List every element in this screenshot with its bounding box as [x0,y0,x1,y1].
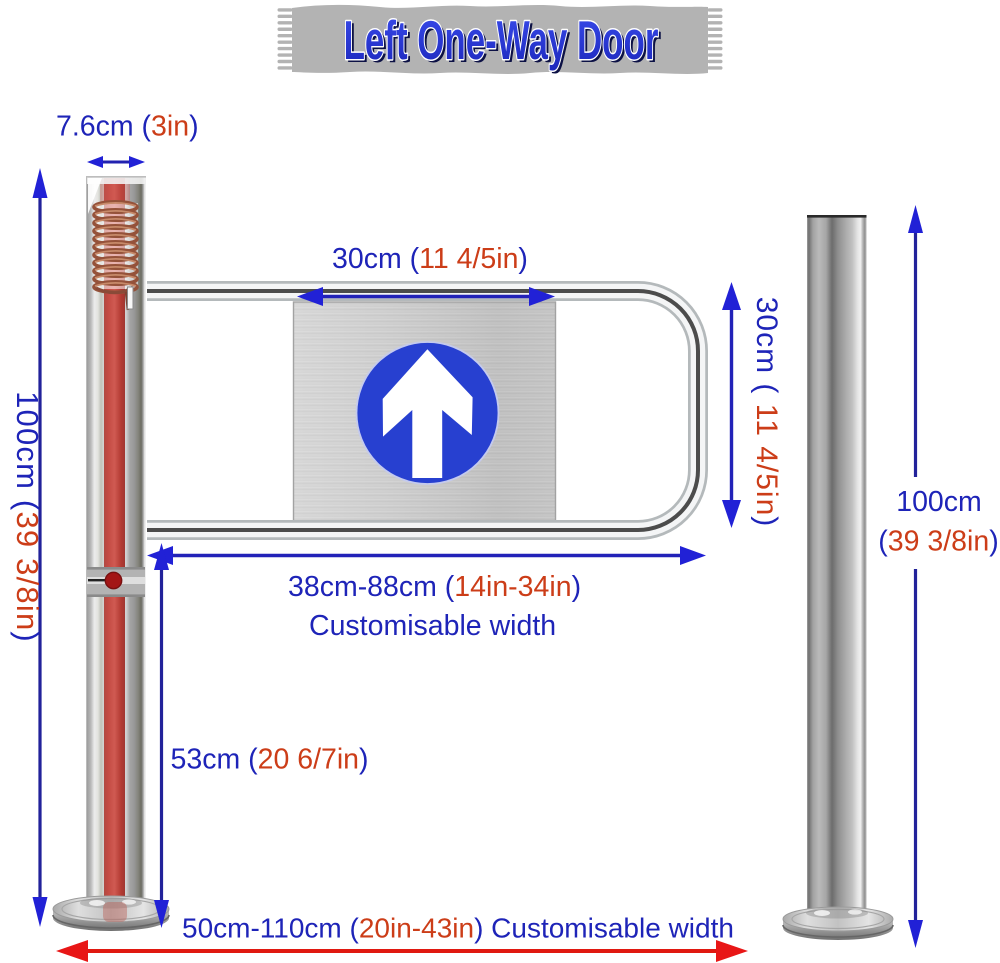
svg-text:Customisable width: Customisable width [309,610,556,642]
svg-text:30cm ( 11 4/5in): 30cm ( 11 4/5in) [750,297,783,528]
svg-text:7.6cm (3in): 7.6cm (3in) [56,111,199,143]
svg-text:53cm (20 6/7in): 53cm (20 6/7in) [171,744,369,776]
svg-text:50cm-110cm (20in-43in) Customi: 50cm-110cm (20in-43in) Customisable widt… [182,913,734,944]
svg-text:30cm (11 4/5in): 30cm (11 4/5in) [332,243,528,275]
svg-text:38cm-88cm (14in-34in): 38cm-88cm (14in-34in) [288,571,581,603]
svg-text:(39 3/8in): (39 3/8in) [878,526,998,558]
svg-text:Left One-Way Door: Left One-Way Door [344,9,659,71]
svg-text:100cm (39 3/8in): 100cm (39 3/8in) [10,391,45,643]
svg-text:100cm: 100cm [896,486,982,518]
